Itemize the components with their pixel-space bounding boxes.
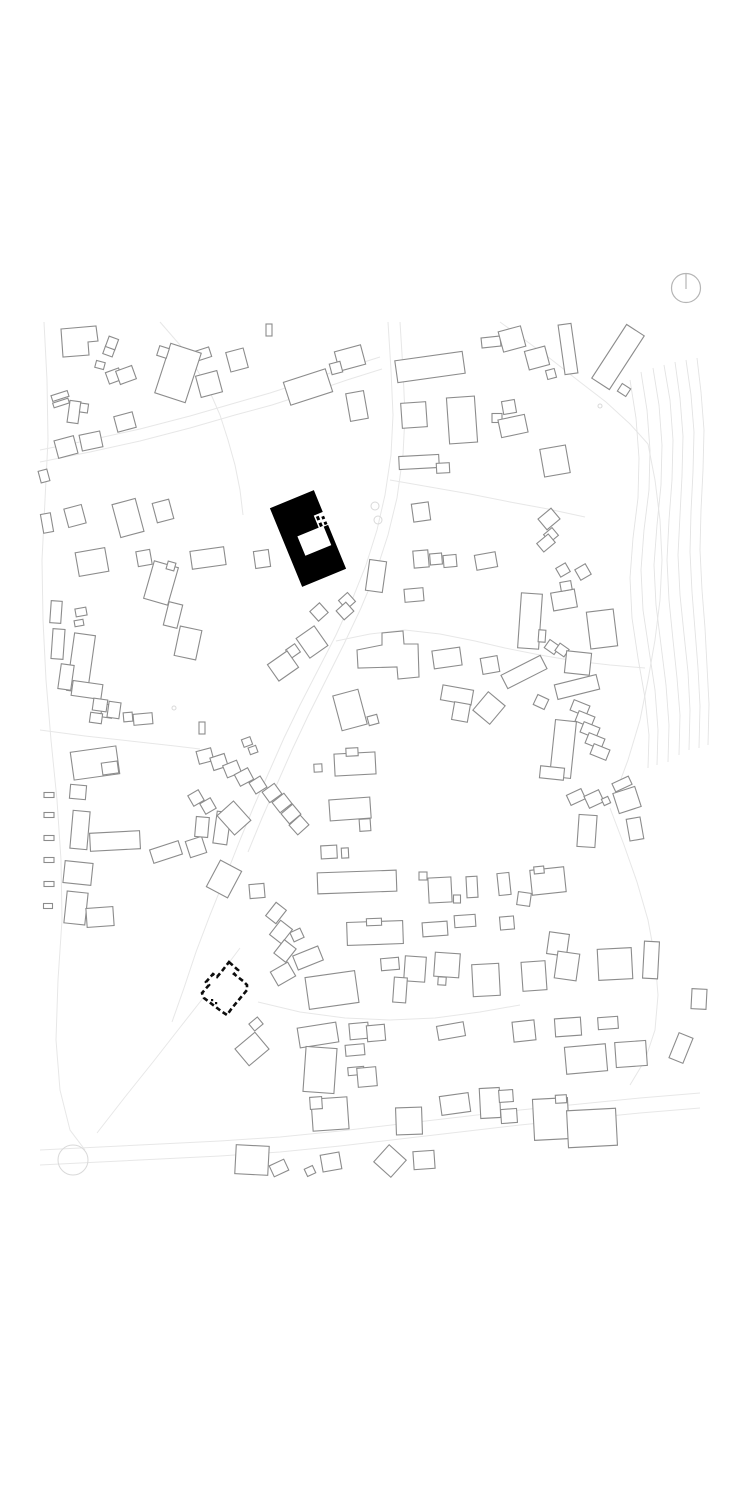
tree-circle <box>598 404 602 408</box>
building <box>434 952 461 978</box>
building <box>479 1087 501 1118</box>
building <box>249 1017 263 1031</box>
building <box>40 513 53 533</box>
tree-circle <box>58 1145 88 1175</box>
building <box>617 384 630 397</box>
road-line <box>40 730 200 749</box>
building <box>297 1022 339 1048</box>
contour-line <box>641 372 658 765</box>
building <box>533 694 549 709</box>
building <box>517 892 532 907</box>
building <box>452 702 471 723</box>
building <box>101 761 119 775</box>
building <box>195 816 210 837</box>
building <box>190 547 226 570</box>
building <box>346 748 358 757</box>
building <box>473 692 505 725</box>
building <box>551 589 578 611</box>
building <box>501 399 516 414</box>
building <box>79 403 88 413</box>
building <box>567 1108 618 1148</box>
building <box>498 326 526 352</box>
building <box>564 651 591 675</box>
building <box>269 1159 289 1177</box>
building <box>401 402 428 429</box>
building <box>64 891 88 925</box>
building <box>592 324 644 389</box>
highlighted-building <box>270 490 347 587</box>
building <box>174 626 202 660</box>
building <box>329 361 342 374</box>
building <box>395 351 465 382</box>
building <box>152 499 174 523</box>
building <box>560 581 572 592</box>
building <box>136 549 152 566</box>
building <box>539 766 564 780</box>
building <box>112 498 144 537</box>
tree-circle <box>172 706 176 710</box>
building <box>430 553 443 565</box>
building <box>419 872 427 880</box>
building <box>314 764 322 772</box>
building <box>554 1017 581 1037</box>
building <box>51 629 65 660</box>
building <box>235 1145 269 1176</box>
building <box>349 1022 369 1040</box>
building <box>123 712 133 722</box>
building <box>44 858 54 863</box>
building <box>270 920 293 943</box>
building <box>590 744 610 761</box>
building <box>133 713 153 726</box>
building <box>669 1033 693 1064</box>
building <box>428 877 452 903</box>
building <box>359 819 371 832</box>
building <box>226 348 249 372</box>
building <box>44 882 54 887</box>
building <box>436 463 450 474</box>
building <box>248 745 258 754</box>
building <box>321 845 338 859</box>
building <box>75 607 87 617</box>
existing-building-dashed <box>202 962 247 1015</box>
building <box>374 1145 406 1177</box>
building <box>266 324 272 336</box>
building <box>74 619 84 626</box>
building <box>432 647 462 669</box>
building <box>466 876 478 898</box>
building <box>317 870 397 894</box>
building <box>413 1150 435 1169</box>
building <box>71 680 103 699</box>
building <box>150 841 183 864</box>
tree-circle <box>374 516 382 524</box>
building <box>79 431 103 451</box>
building <box>90 831 141 852</box>
building <box>554 675 599 700</box>
building <box>114 412 136 432</box>
building <box>538 508 560 530</box>
building <box>512 1020 536 1042</box>
building <box>296 626 328 658</box>
building <box>554 951 580 981</box>
building <box>436 1022 465 1040</box>
building <box>58 664 74 691</box>
building <box>70 810 90 849</box>
building <box>413 550 429 568</box>
building <box>439 1093 470 1116</box>
building <box>63 861 93 886</box>
building <box>499 916 514 930</box>
building <box>422 921 448 937</box>
building <box>472 963 501 996</box>
building <box>38 469 50 483</box>
building <box>44 904 53 909</box>
contour-line <box>653 368 669 762</box>
building <box>305 971 359 1010</box>
building <box>446 396 477 444</box>
building <box>310 1097 323 1110</box>
building <box>50 601 63 624</box>
building <box>540 445 570 477</box>
contour-line <box>675 362 690 750</box>
building <box>75 548 109 577</box>
building <box>366 918 381 926</box>
building <box>497 872 511 895</box>
site-plan-drawing <box>0 0 750 1500</box>
road-line <box>258 1002 520 1020</box>
building <box>443 554 457 567</box>
building <box>691 989 707 1010</box>
tree-circle <box>371 502 379 510</box>
building <box>241 737 252 748</box>
building <box>163 602 182 629</box>
site-plan-page <box>0 0 750 1500</box>
north-arrow <box>672 274 701 303</box>
building <box>293 946 324 970</box>
building <box>393 977 408 1003</box>
building <box>346 391 369 422</box>
building <box>345 1044 365 1057</box>
building <box>396 1107 423 1135</box>
building <box>501 1108 518 1123</box>
building <box>253 550 270 569</box>
building <box>538 630 546 642</box>
dashed-outline <box>202 962 247 1015</box>
building <box>249 883 265 898</box>
building <box>577 814 597 847</box>
building <box>532 1098 569 1141</box>
building <box>381 957 400 971</box>
building <box>270 962 295 986</box>
building <box>524 346 549 370</box>
building <box>555 1095 566 1104</box>
building <box>304 1165 316 1176</box>
building <box>266 902 287 923</box>
building <box>454 914 476 927</box>
building <box>404 588 424 603</box>
building <box>499 1090 514 1103</box>
building <box>438 977 447 986</box>
building <box>166 561 176 571</box>
building <box>411 502 430 522</box>
contour-line <box>686 360 700 748</box>
building <box>481 336 501 348</box>
building <box>107 701 121 719</box>
building <box>199 722 205 734</box>
building <box>92 698 108 712</box>
building <box>626 817 644 841</box>
building <box>86 907 114 928</box>
dashed-dot <box>215 1002 217 1004</box>
building <box>89 712 102 724</box>
building <box>341 848 349 858</box>
building <box>598 1016 619 1029</box>
building <box>95 360 106 369</box>
road-line <box>615 444 662 795</box>
building <box>44 813 54 818</box>
building <box>643 941 660 979</box>
building <box>44 836 54 841</box>
building <box>69 784 86 799</box>
building <box>206 860 241 898</box>
building <box>310 603 328 621</box>
building <box>367 714 379 725</box>
building <box>566 789 585 806</box>
building <box>556 563 571 577</box>
building <box>357 1067 378 1088</box>
highlighted-building-mass <box>270 490 346 587</box>
building <box>480 656 500 675</box>
building <box>474 552 497 570</box>
building <box>235 1032 269 1066</box>
building <box>329 797 371 821</box>
building <box>575 564 591 580</box>
building <box>365 559 386 592</box>
contour-lines <box>630 358 709 768</box>
context-buildings <box>38 323 707 1177</box>
building <box>586 609 617 649</box>
building <box>320 1152 342 1172</box>
building <box>333 689 367 731</box>
building <box>44 793 54 798</box>
building <box>64 504 86 527</box>
building <box>283 369 332 405</box>
building <box>366 1024 385 1042</box>
building <box>521 961 547 992</box>
building <box>564 1044 607 1074</box>
contour-line <box>630 380 649 768</box>
building <box>61 326 98 357</box>
building <box>454 895 461 903</box>
building <box>185 836 206 857</box>
building <box>399 454 440 469</box>
building <box>303 1046 337 1093</box>
building <box>545 368 556 379</box>
building <box>357 631 419 679</box>
dashed-dot <box>211 999 213 1001</box>
building <box>274 940 296 963</box>
building <box>597 948 633 981</box>
building <box>534 866 545 874</box>
contour-line <box>664 365 680 755</box>
building <box>501 655 547 688</box>
building <box>615 1040 648 1067</box>
